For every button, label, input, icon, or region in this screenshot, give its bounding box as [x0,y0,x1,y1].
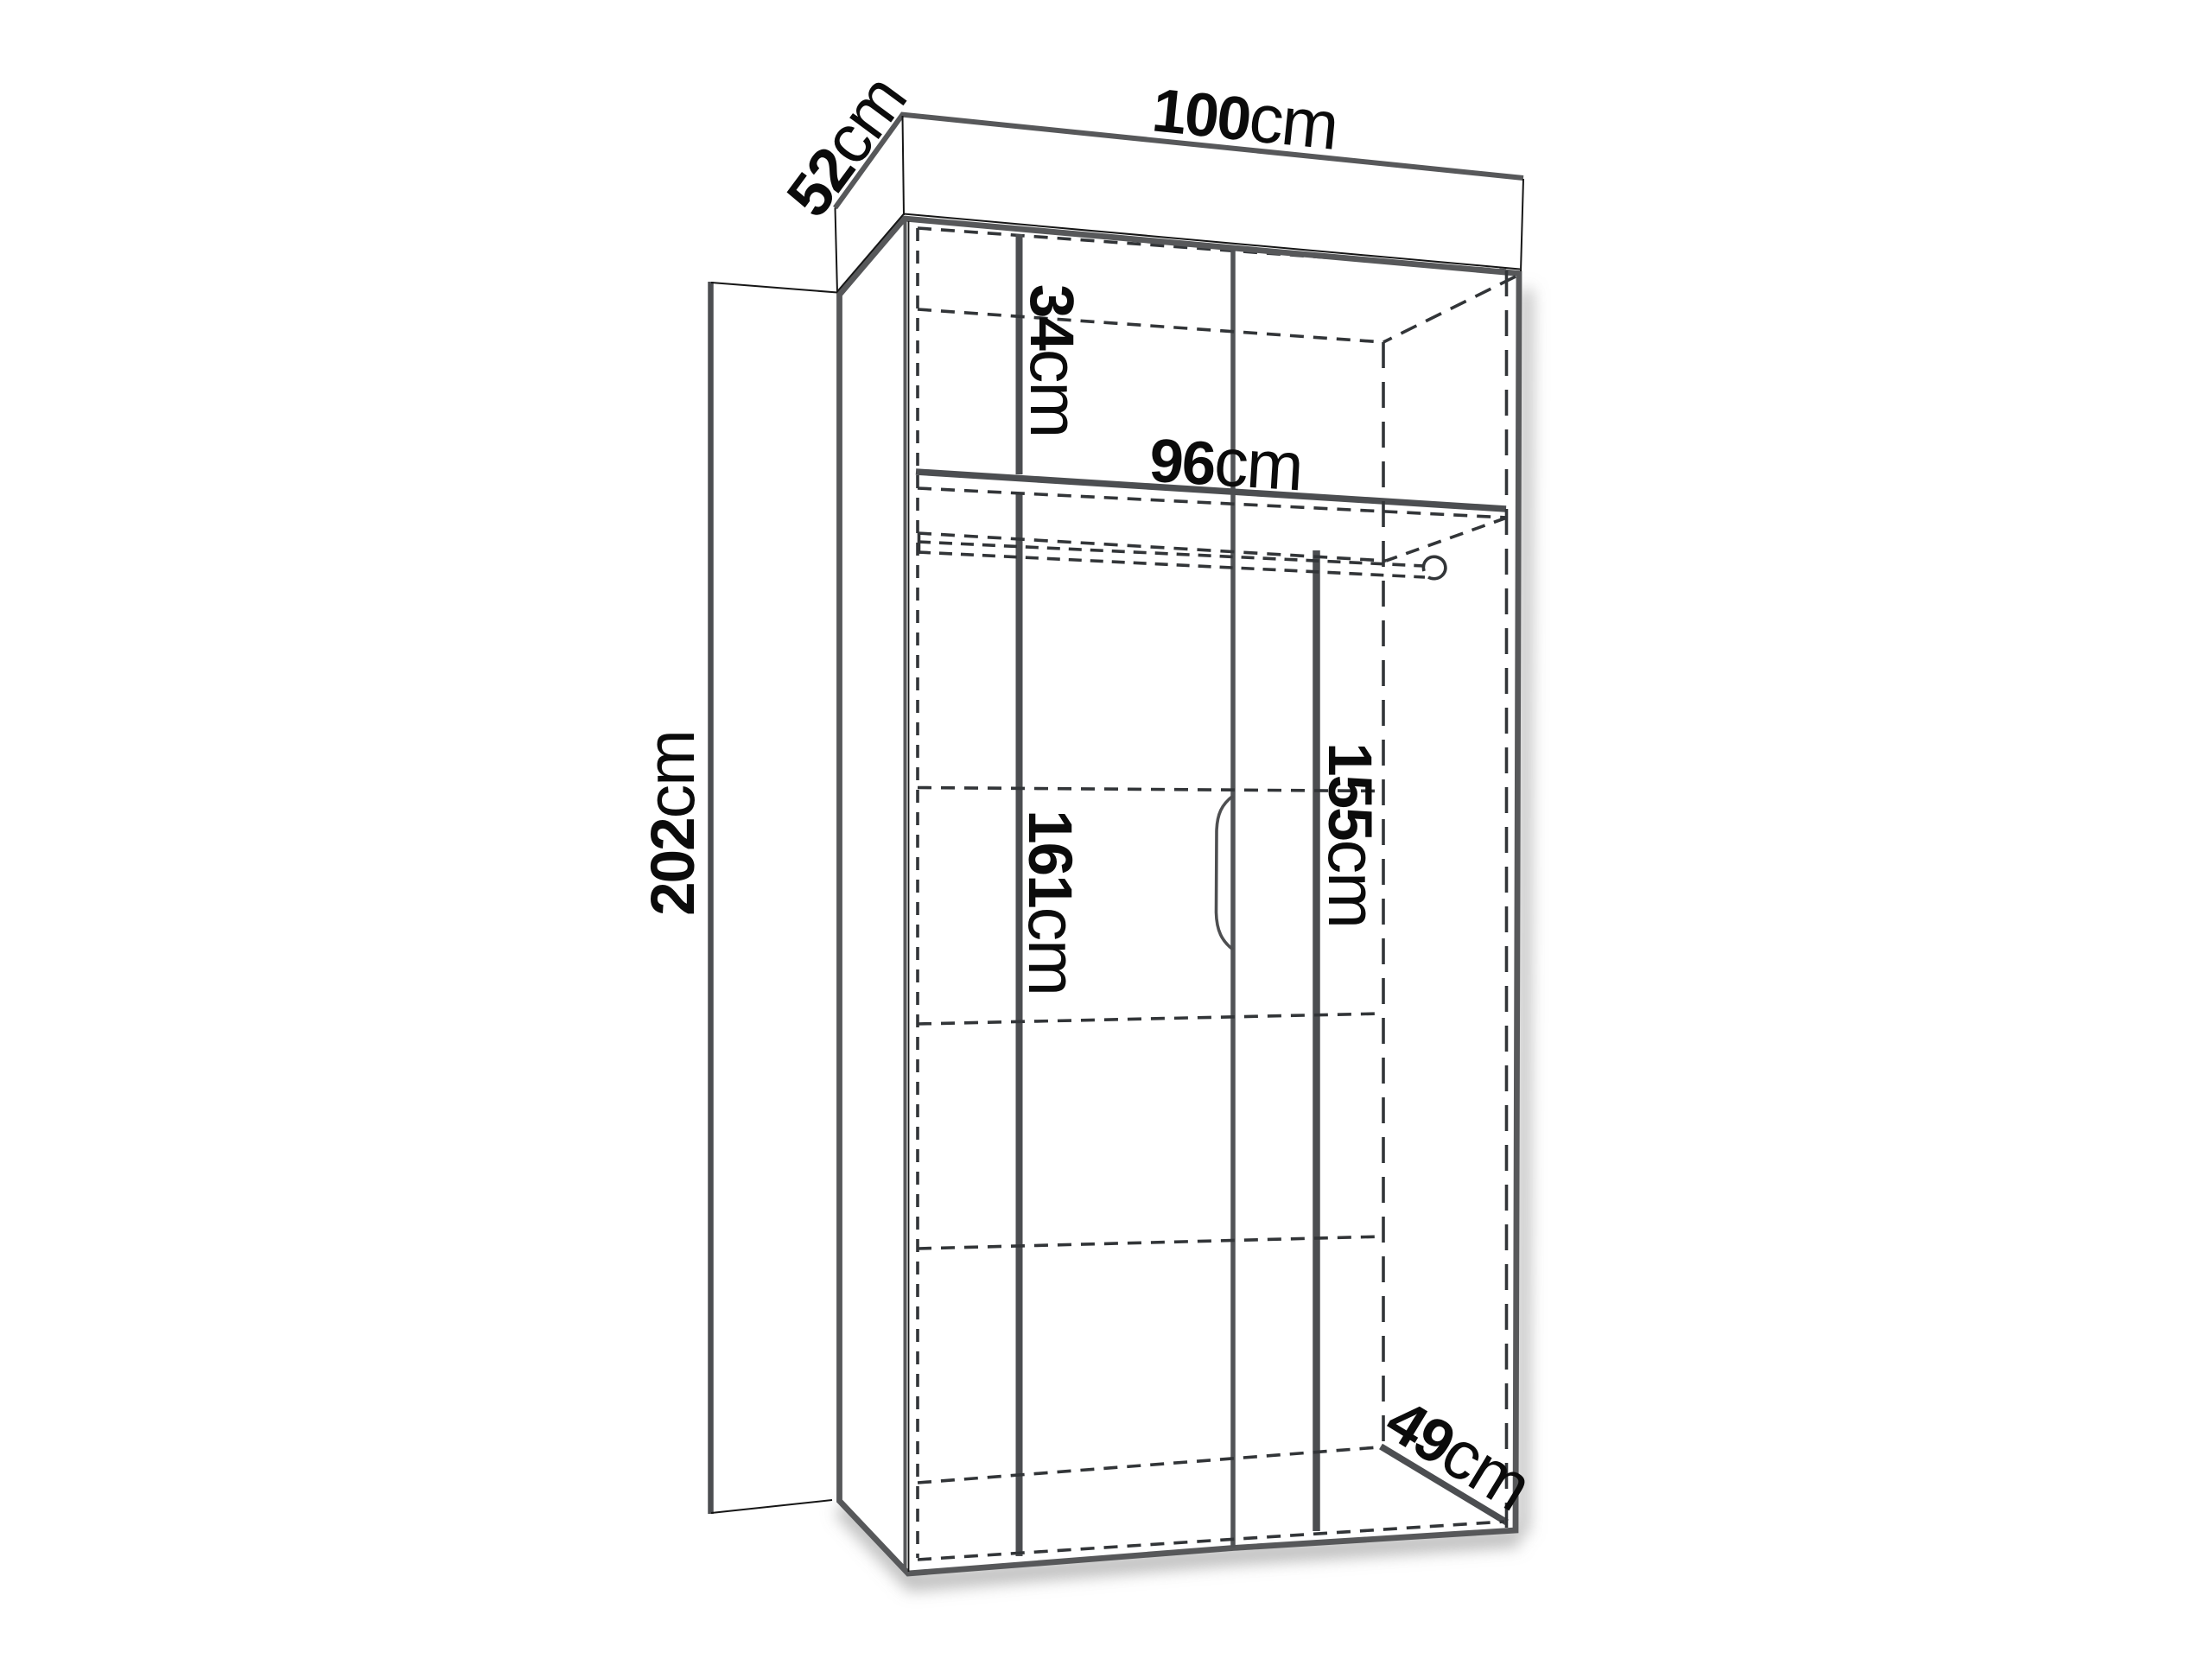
svg-text:202cm: 202cm [632,731,709,916]
svg-text:155cm: 155cm [1314,742,1391,927]
svg-text:34cm: 34cm [1016,284,1093,436]
svg-text:161cm: 161cm [1014,810,1091,995]
svg-text:96cm: 96cm [1147,419,1304,505]
